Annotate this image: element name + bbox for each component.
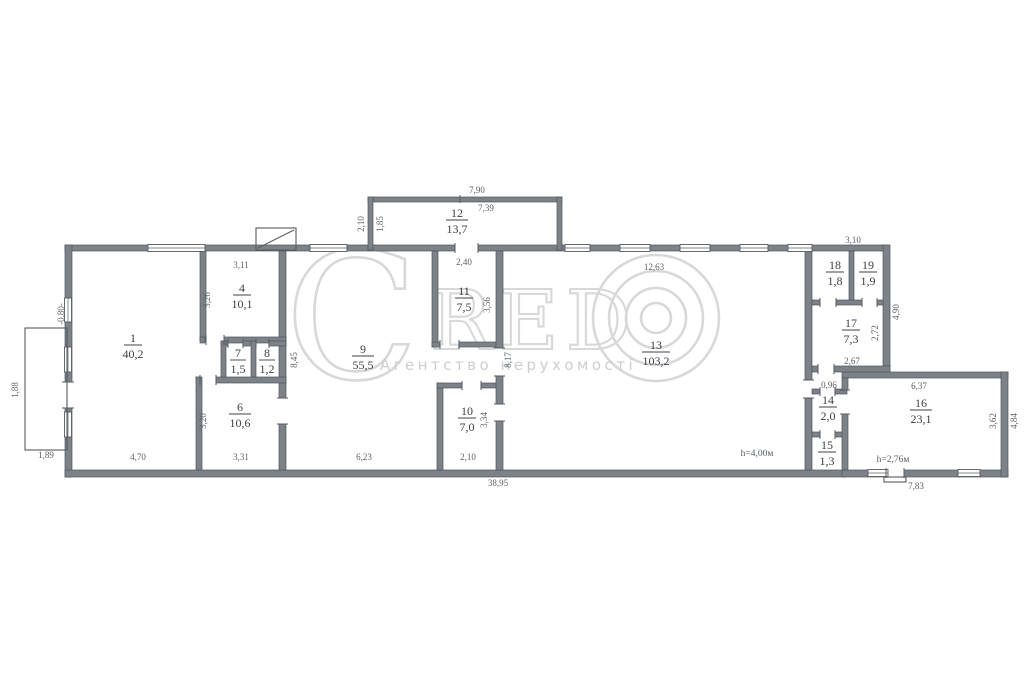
dimension-label: 8,45 (289, 352, 299, 368)
svg-text:9: 9 (360, 342, 366, 356)
room-label-1: 140,2 (123, 331, 144, 361)
svg-text:2,0: 2,0 (821, 409, 836, 423)
svg-text:7,5: 7,5 (457, 300, 472, 314)
room-label-10: 107,0 (458, 404, 476, 434)
dimension-label: 3,31 (233, 452, 249, 462)
dimension-label: 3,20 (198, 413, 208, 429)
svg-text:19: 19 (862, 258, 874, 272)
dimension-label: 2,72 (870, 325, 880, 341)
svg-text:1,3: 1,3 (820, 454, 835, 468)
level-mark-label: -0,80- (56, 303, 66, 325)
svg-text:40,2: 40,2 (123, 347, 144, 361)
dimension-label: 3,56 (482, 297, 492, 313)
room-label-8: 81,2 (259, 346, 275, 376)
svg-text:4: 4 (239, 281, 245, 295)
room-label-12: 1213,7 (446, 206, 468, 236)
dimension-label: 7,90 (469, 185, 485, 195)
room-label-15: 151,3 (818, 438, 836, 468)
room-label-18: 181,8 (826, 258, 844, 288)
dimension-label: 8,17 (503, 352, 513, 368)
svg-text:18: 18 (829, 258, 841, 272)
svg-text:14: 14 (822, 393, 834, 407)
svg-text:11: 11 (458, 284, 470, 298)
svg-text:7: 7 (235, 346, 241, 360)
svg-text:13: 13 (650, 338, 662, 352)
ceiling-height-room16: h=2,76м (877, 455, 910, 465)
svg-text:10: 10 (461, 404, 473, 418)
room-label-13: 13103,2 (642, 338, 670, 368)
dimension-label: 2,10 (356, 216, 366, 232)
room-label-4: 410,1 (232, 281, 253, 311)
svg-text:55,5: 55,5 (353, 358, 374, 372)
dimension-label: 4,70 (130, 452, 146, 462)
ceiling-height-room13: h=4,00м (741, 449, 774, 459)
svg-text:7,3: 7,3 (844, 332, 859, 346)
room-label-16: 1623,1 (910, 396, 932, 426)
svg-text:1,8: 1,8 (828, 274, 843, 288)
room-label-19: 191,9 (859, 258, 877, 288)
dimension-label: 0,96 (821, 380, 837, 390)
dimension-label: 3,34 (479, 412, 489, 428)
svg-text:7,0: 7,0 (460, 420, 475, 434)
svg-text:1,5: 1,5 (231, 362, 246, 376)
floor-plan-scan: C RED Агентство нерухомості (0, 0, 1024, 682)
dimension-label: 1,88 (10, 382, 20, 398)
room-label-17: 177,3 (842, 316, 860, 346)
room-label-7: 71,5 (230, 346, 246, 376)
floor-plan-svg: C RED Агентство нерухомості (0, 0, 1024, 682)
svg-text:8: 8 (264, 346, 270, 360)
room-label-6: 610,6 (229, 400, 251, 430)
svg-text:16: 16 (915, 396, 927, 410)
svg-text:6: 6 (237, 400, 243, 414)
svg-text:1,9: 1,9 (861, 274, 876, 288)
dimension-label: 12,63 (644, 262, 665, 272)
dimension-label: 6,37 (911, 381, 927, 391)
dimension-label: 3,62 (988, 413, 998, 429)
svg-text:1,2: 1,2 (260, 362, 275, 376)
svg-text:23,1: 23,1 (911, 412, 932, 426)
dimension-label: 4,84 (1009, 413, 1019, 429)
dimension-label: 2,67 (844, 356, 860, 366)
dimension-label: 3,11 (233, 260, 248, 270)
svg-text:17: 17 (845, 316, 857, 330)
dimension-label: 2,10 (460, 452, 476, 462)
dimension-label: 1,85 (375, 216, 385, 232)
svg-text:1: 1 (130, 331, 136, 345)
svg-text:15: 15 (821, 438, 833, 452)
svg-text:10,1: 10,1 (232, 297, 253, 311)
dimension-label: 7,83 (908, 481, 924, 491)
dimension-label: 6,23 (356, 452, 372, 462)
porch-outline (25, 328, 67, 450)
dimension-label: 3,26 (202, 292, 212, 308)
dimension-label: 2,40 (456, 257, 472, 267)
svg-text:103,2: 103,2 (643, 354, 670, 368)
svg-text:13,7: 13,7 (447, 222, 468, 236)
dimension-label: 7,39 (478, 203, 494, 213)
dimension-label: 1,89 (38, 450, 54, 460)
dimension-label: 3,10 (845, 235, 861, 245)
room-label-14: 142,0 (819, 393, 837, 423)
dimension-label-total-length: 38,95 (488, 478, 509, 488)
svg-text:10,6: 10,6 (230, 416, 251, 430)
dimension-label: 4,90 (891, 304, 901, 320)
svg-text:12: 12 (451, 206, 463, 220)
